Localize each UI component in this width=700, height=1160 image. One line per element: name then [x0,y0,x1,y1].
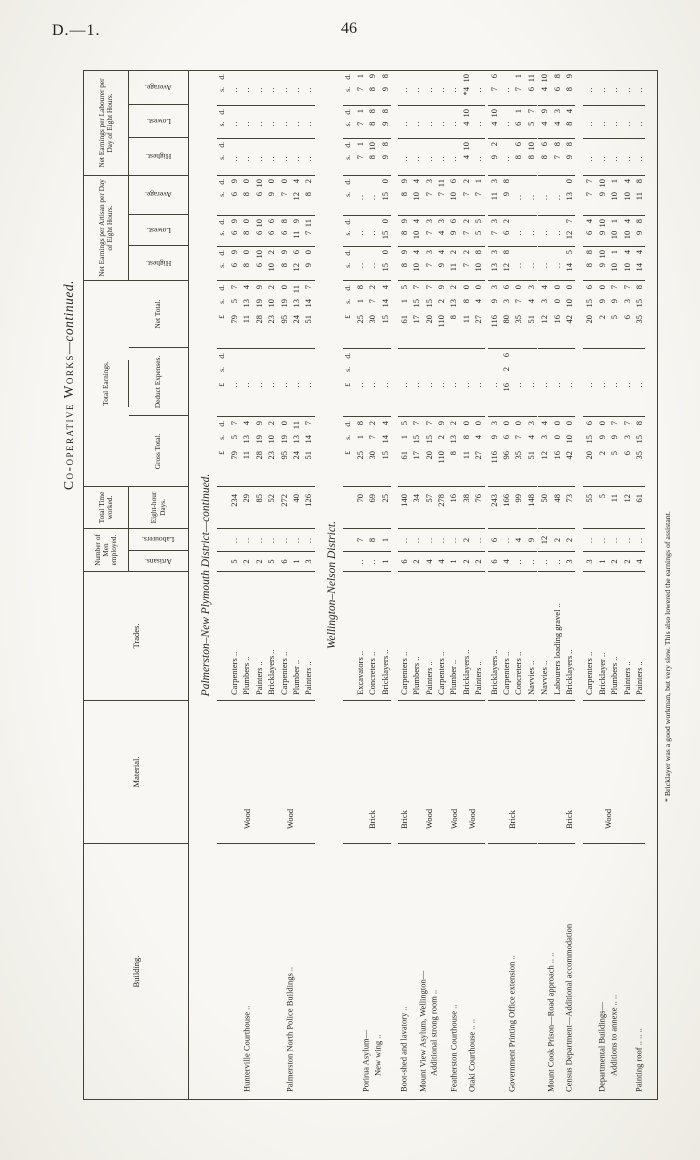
table-row: Plumbers ..2..11597..597101101101...... [608,71,620,701]
labourers-count-cell: .. [228,529,240,552]
building-name: Palmerston North Police Buildings .. [284,846,296,1092]
artisans-count-cell: .. [525,552,537,572]
artisan-highest-cell: .. [354,247,366,281]
artisan-lowest-cell: 64 [583,216,595,247]
artisan-average-cell: 104 [621,176,633,216]
gross-total-cell: 3570 [512,417,524,487]
artisan-lowest-cell: .. [354,216,366,247]
artisan-highest-cell: 112 [447,247,459,281]
gross-total-cell: 2740 [472,417,484,487]
labourers-count-cell: .. [633,529,645,552]
material-name: Wood [467,809,477,829]
deduct-expenses-cell: .. [435,349,447,417]
labourers-count-cell: 2 [563,529,575,552]
net-total-cell: 597 [608,281,620,349]
artisan-average-cell: 80 [240,176,252,216]
labourer-highest-cell: .. [633,139,645,176]
days-worked-cell: 25 [379,487,391,529]
sd-header-sd: s.d. [217,176,228,216]
labourer-average-cell: 89 [366,71,378,106]
artisan-lowest-cell: 119 [290,216,302,247]
deduct-expenses-cell: .. [583,349,595,417]
header-number-group-label: Number of Men employed. [84,529,129,571]
building-cell: Departmental Buildings—Additions to anne… [583,844,633,1099]
labourer-highest-cell: 810 [525,139,537,176]
trade-cell: Painters .. [423,572,435,701]
deduct-expenses-cell: .. [240,349,252,417]
labourer-average-cell: *410 [460,71,472,106]
artisan-average-cell: 89 [398,176,410,216]
artisan-highest-cell: 910 [596,247,608,281]
sd-header-sd: s.d. [217,139,228,176]
artisan-lowest-cell: 104 [410,216,422,247]
labourers-count-cell: .. [447,529,459,552]
material-cell: Brick [398,701,410,844]
labourers-count-cell: 7 [354,529,366,552]
artisan-lowest-cell: 104 [621,216,633,247]
material-name: Wood [449,809,459,829]
building-name: Census Department—Additional accommodati… [563,846,575,1092]
days-worked-cell: 85 [253,487,265,529]
labourer-lowest-cell: .. [423,106,435,139]
building-group: Hunterville Courthouse ..WoodCarpenters … [228,71,265,1099]
trade-cell: Painters .. [621,572,633,701]
artisan-average-cell: 72 [460,176,472,216]
artisan-highest-cell: 126 [290,247,302,281]
table-row: Bricklayers ..112515144..151441501501509… [379,71,391,701]
artisans-count-cell: 3 [302,552,314,572]
material-cell: Wood [228,701,265,844]
labourers-count-cell: .. [278,529,290,552]
trade-cell: Concreters .. [512,572,524,701]
table-row: Painters ..2..8528199..28199610610610...… [253,71,265,701]
labourer-lowest-cell: 410 [488,106,500,139]
labourer-lowest-cell: .. [290,106,302,139]
artisans-count-cell: .. [538,552,550,572]
building-cell: Porirua Asylum—New wing .. [354,844,391,1099]
labourer-lowest-cell: .. [410,106,422,139]
deduct-expenses-cell: .. [302,349,314,417]
material-name: Brick [399,810,409,829]
labourer-highest-cell: 86 [512,139,524,176]
artisan-lowest-cell: 101 [608,216,620,247]
trade-cell: Bricklayers .. [488,572,500,701]
sd-header-row: £s.d.£s.d.£s.d.s.d.s.d.s.d.s.d.s.d.s.d. [343,71,354,1099]
labourer-average-cell: .. [435,71,447,106]
labourer-highest-cell: .. [608,139,620,176]
gross-total-cell: 11693 [488,417,500,487]
gross-total-cell: 20157 [423,417,435,487]
sd-header-money: £s.d. [343,417,354,487]
net-total-cell: 20156 [583,281,595,349]
gross-total-cell: 1234 [538,417,550,487]
gross-total-cell: 8132 [447,417,459,487]
deduct-expenses-cell: .. [525,349,537,417]
building-group: Porirua Asylum—New wing ..BrickExcavator… [354,71,391,1099]
artisan-average-cell: .. [538,176,550,216]
days-worked-cell: 12 [621,487,633,529]
building-cell: Otaki Courthouse .. .. [460,844,485,1099]
artisan-average-cell: 101 [608,176,620,216]
artisan-average-cell: 106 [447,176,459,216]
artisan-highest-cell: 80 [240,247,252,281]
artisan-lowest-cell: .. [538,216,550,247]
net-total-cell: 3570 [512,281,524,349]
building-cell: Hunterville Courthouse .. [228,844,265,1099]
labourer-average-cell: .. [265,71,277,106]
material-cell: Brick [488,701,538,844]
labourer-highest-cell: .. [290,139,302,176]
table-row: Excavators ....7702518..2518......717171 [354,71,366,701]
net-total-cell: 11134 [240,281,252,349]
labourers-count-cell: .. [410,529,422,552]
building-cell: Featherston Courthouse .. [447,844,459,1099]
days-worked-cell: 11 [608,487,620,529]
artisans-count-cell: .. [551,552,563,572]
table-row: Carpenters ..4..27811029..110299443711..… [435,71,447,701]
cooperative-works-table: Building. Material. Trades. Number of Me… [83,70,658,1100]
header-gross-total: Gross Total. [129,417,188,487]
labourer-highest-cell: .. [398,139,410,176]
labourer-highest-cell: .. [410,139,422,176]
artisans-count-cell: .. [512,552,524,572]
gross-total-cell: 42100 [563,417,575,487]
sd-header-sd: s.d. [343,176,354,216]
header-artisans: Artisans. [129,552,188,572]
artisan-lowest-cell: 66 [265,216,277,247]
artisan-highest-cell: 88 [583,247,595,281]
labourer-average-cell: .. [410,71,422,106]
gross-total-cell: 241311 [290,417,302,487]
net-total-cell: 11693 [488,281,500,349]
building-group: Census Department—Additional accommodati… [563,71,575,1099]
labourers-count-cell: .. [398,529,410,552]
labourer-lowest-cell: .. [633,106,645,139]
table-row: Plumbers ..2..2911134..11134808080...... [240,71,252,701]
table-row: Carpenters ..6..1406115..6115898989.....… [398,71,410,701]
artisan-average-cell: .. [354,176,366,216]
gross-total-cell: 290 [596,417,608,487]
material-cell: Wood [460,701,485,844]
trade-cell: Carpenters .. [278,572,290,701]
trade-cell: Plumbers .. [608,572,620,701]
gross-total-cell: 95190 [278,417,290,487]
labourer-highest-cell: 98 [379,139,391,176]
labourers-count-cell: 6 [488,529,500,552]
artisans-count-cell: 2 [253,552,265,572]
artisan-lowest-cell: 80 [240,216,252,247]
labourers-count-cell: .. [290,529,302,552]
sd-header-money: £s.d. [217,417,228,487]
gross-total-cell: 51147 [302,417,314,487]
material-cell [538,701,563,844]
artisan-average-cell: 69 [228,176,240,216]
net-total-cell: 35158 [633,281,645,349]
deduct-expenses-cell: .. [423,349,435,417]
artisans-count-cell: 4 [423,552,435,572]
building-name: Government Printing Office extension .. [507,846,519,1092]
artisans-count-cell: 4 [435,552,447,572]
deduct-expenses-cell: .. [633,349,645,417]
table-row: Concreters ....4993570..3570......866171 [512,71,524,701]
trade-cell: Concreters .. [366,572,378,701]
net-total-cell: 28199 [253,281,265,349]
days-worked-cell: 16 [447,487,459,529]
labourer-average-cell: .. [278,71,290,106]
section-heading: Palmerston–New Plymouth District—continu… [195,71,217,1099]
artisan-average-cell: 104 [410,176,422,216]
artisan-highest-cell: 108 [472,247,484,281]
sd-header-sd: s.d. [343,216,354,247]
deduct-expenses-cell: .. [265,349,277,417]
artisan-lowest-cell: .. [551,216,563,247]
deduct-expenses-cell: 1626 [500,349,512,417]
labourers-count-cell: .. [596,529,608,552]
header-labourer-average: Average. [129,71,188,106]
labourer-lowest-cell: 71 [354,106,366,139]
days-worked-cell: 166 [500,487,512,529]
sd-header-sd: s.d. [343,106,354,139]
table-row: Bricklayers ..22381180..1180727272410410… [460,71,472,701]
labourer-average-cell: .. [596,71,608,106]
artisans-count-cell: 3 [583,552,595,572]
table-row: Concreters ....8693072..3072......810888… [366,71,378,701]
artisan-lowest-cell: 610 [253,216,265,247]
days-worked-cell: 40 [290,487,302,529]
trade-cell: Carpenters .. [228,572,240,701]
artisans-count-cell: 4 [633,552,645,572]
labourer-lowest-cell: .. [621,106,633,139]
artisans-count-cell: 6 [398,552,410,572]
table-row: Plumber ..1..168132..813211296106...... [447,71,459,701]
deduct-expenses-cell: .. [460,349,472,417]
net-total-cell: 11029 [435,281,447,349]
labourer-average-cell: 68 [551,71,563,106]
artisan-average-cell: 150 [379,176,391,216]
artisan-average-cell: .. [551,176,563,216]
building-name: Painting roof .. .. .. [633,846,645,1092]
header-artisan-average: Average. [129,176,188,216]
labourer-average-cell: .. [633,71,645,106]
building-group: Boot-shed and lavatory ..BrickCarpenters… [398,71,410,1099]
deduct-expenses-cell: .. [366,349,378,417]
material-name: Brick [367,810,377,829]
trade-cell: Painters .. [472,572,484,701]
deduct-expenses-cell: .. [379,349,391,417]
artisan-highest-cell: 89 [398,247,410,281]
artisans-count-cell: 1 [447,552,459,572]
gross-total-cell: 3072 [366,417,378,487]
labourer-lowest-cell: 49 [538,106,550,139]
artisan-average-cell: 70 [278,176,290,216]
net-total-cell: 17157 [410,281,422,349]
table-row: Navvies ....91485143..5143......81057611 [525,71,537,701]
sd-header-money: £s.d. [343,281,354,349]
artisan-lowest-cell: 68 [278,216,290,247]
labourer-highest-cell: 86 [538,139,550,176]
artisan-average-cell: 82 [302,176,314,216]
net-total-cell: 5143 [525,281,537,349]
artisan-highest-cell: .. [538,247,550,281]
labourer-lowest-cell: .. [398,106,410,139]
header-labourer-earnings: Net Earnings per Labourer per Day of Eig… [84,71,188,176]
deduct-expenses-cell: .. [253,349,265,417]
labourer-highest-cell: 78 [551,139,563,176]
artisans-count-cell: 5 [228,552,240,572]
labourer-highest-cell: .. [265,139,277,176]
days-worked-cell: 278 [435,487,447,529]
trade-cell: Carpenters .. [583,572,595,701]
artisan-lowest-cell: 72 [460,216,472,247]
labourers-count-cell: 12 [538,529,550,552]
sd-header-sd: s.d. [343,139,354,176]
header-net-total: Net Total. [129,281,188,349]
deduct-expenses-cell: .. [512,349,524,417]
days-worked-cell: 55 [583,487,595,529]
artisans-count-cell: 6 [278,552,290,572]
artisan-highest-cell: 94 [435,247,447,281]
labourers-count-cell: 8 [366,529,378,552]
sd-header-money: £s.d. [343,349,354,417]
building-group: Departmental Buildings—Additions to anne… [583,71,633,1099]
trade-cell: Bricklayers .. [460,572,472,701]
material-name: Brick [507,810,517,829]
labourer-lowest-cell: 57 [525,106,537,139]
material-name: Wood [285,809,295,829]
days-worked-cell: 234 [228,487,240,529]
labourer-average-cell: 410 [538,71,550,106]
artisan-highest-cell: 144 [633,247,645,281]
artisan-highest-cell: 73 [423,247,435,281]
net-total-cell: 2518 [354,281,366,349]
artisans-count-cell: 2 [472,552,484,572]
labourer-average-cell: 611 [525,71,537,106]
artisan-highest-cell: .. [512,247,524,281]
sd-header-sd: s.d. [217,247,228,281]
sd-header-money: £s.d. [217,349,228,417]
trade-cell: Plumbers .. [410,572,422,701]
gross-total-cell: 1180 [460,417,472,487]
header-earnings-group-label: Total Earnings. [84,360,129,406]
material-cell: Wood [410,701,447,844]
header-building: Building. [84,844,188,1099]
building-group: Featherston Courthouse ..WoodPlumber ..1… [447,71,459,1099]
labourer-lowest-cell: 88 [366,106,378,139]
sd-header-sd: s.d. [217,106,228,139]
artisans-count-cell: 4 [500,552,512,572]
artisan-highest-cell: 72 [460,247,472,281]
artisans-count-cell: 2 [240,552,252,572]
labourer-highest-cell: .. [423,139,435,176]
artisans-count-cell: 2 [460,552,472,572]
gross-total-cell: 28199 [253,417,265,487]
gross-total-cell: 637 [621,417,633,487]
table-row: Bricklayer ..1..5290..290910910910...... [596,71,608,701]
material-cell: Wood [583,701,633,844]
net-total-cell: 2740 [472,281,484,349]
days-worked-cell: 29 [240,487,252,529]
building-name: Otaki Courthouse .. .. [467,846,479,1092]
artisan-lowest-cell: 127 [563,216,575,247]
artisan-lowest-cell: .. [512,216,524,247]
artisan-lowest-cell: 98 [633,216,645,247]
artisan-average-cell: 910 [596,176,608,216]
header-total-time: Total Time worked. Eight-hour Days. [84,487,188,529]
table-row: Carpenters ..4..1669660162680361286298..… [500,71,512,701]
trade-cell: Navvies .. [538,572,550,701]
building-cell: Painting roof .. .. .. [633,844,645,1099]
trade-cell: Bricklayers .. [265,572,277,701]
building-cell: Mount View Asylum, Wellington—Additional… [410,844,447,1099]
header-time-group-label: Total Time worked. [84,487,129,528]
building-group: Otaki Courthouse .. ..WoodBricklayers ..… [460,71,485,1099]
deduct-expenses-cell: .. [472,349,484,417]
days-worked-cell: 50 [538,487,550,529]
material-name: Wood [242,809,252,829]
artisans-count-cell: .. [366,552,378,572]
artisan-highest-cell: 89 [278,247,290,281]
net-total-cell: 20157 [423,281,435,349]
table-title: Co-operative Works—continued. [61,60,77,710]
artisan-lowest-cell: 150 [379,216,391,247]
labourer-average-cell: .. [621,71,633,106]
labourer-highest-cell: .. [621,139,633,176]
deduct-expenses-cell: .. [596,349,608,417]
sd-header-sd: s.d. [343,71,354,106]
labourer-highest-cell: 410 [460,139,472,176]
header-artisan-lowest: Lowest. [129,216,188,247]
artisan-highest-cell: .. [525,247,537,281]
days-worked-cell: 243 [488,487,500,529]
deduct-expenses-cell: .. [290,349,302,417]
trade-cell: Carpenters .. [500,572,512,701]
sd-header-money: £s.d. [217,281,228,349]
days-worked-cell: 76 [472,487,484,529]
days-worked-cell: 38 [460,487,472,529]
artisan-lowest-cell: 69 [228,216,240,247]
trade-cell: Plumber .. [447,572,459,701]
labourer-average-cell: 89 [563,71,575,106]
labourers-count-cell: .. [423,529,435,552]
material-cell: Brick [563,701,575,844]
net-total-cell: 8132 [447,281,459,349]
deduct-expenses-cell: .. [563,349,575,417]
labourer-lowest-cell: .. [500,106,512,139]
labourers-count-cell: .. [253,529,265,552]
labourer-lowest-cell: 43 [551,106,563,139]
labourers-count-cell: 2 [460,529,472,552]
net-total-cell: 241311 [290,281,302,349]
labourer-average-cell: .. [423,71,435,106]
table-row: Carpenters ..6..27295190..95190896870...… [278,71,290,701]
artisan-average-cell: 118 [633,176,645,216]
net-total-cell: 95190 [278,281,290,349]
gross-total-cell: 597 [608,417,620,487]
net-total-cell: 1180 [460,281,472,349]
table-row: Carpenters ..3..5520156..20156886477....… [583,71,595,701]
labourer-highest-cell: .. [240,139,252,176]
gross-total-cell: 6115 [398,417,410,487]
labourer-highest-cell: .. [472,139,484,176]
gross-total-cell: 11029 [435,417,447,487]
footnote: * Bricklayer was a good workman, but ver… [663,202,672,802]
artisan-highest-cell: 610 [253,247,265,281]
table-row: Navvies ....12501234..1234......8649410 [538,71,550,701]
material-cell: Brick [354,701,391,844]
labourer-average-cell: 98 [379,71,391,106]
artisans-count-cell: 1 [290,552,302,572]
trade-cell: Painters .. [253,572,265,701]
